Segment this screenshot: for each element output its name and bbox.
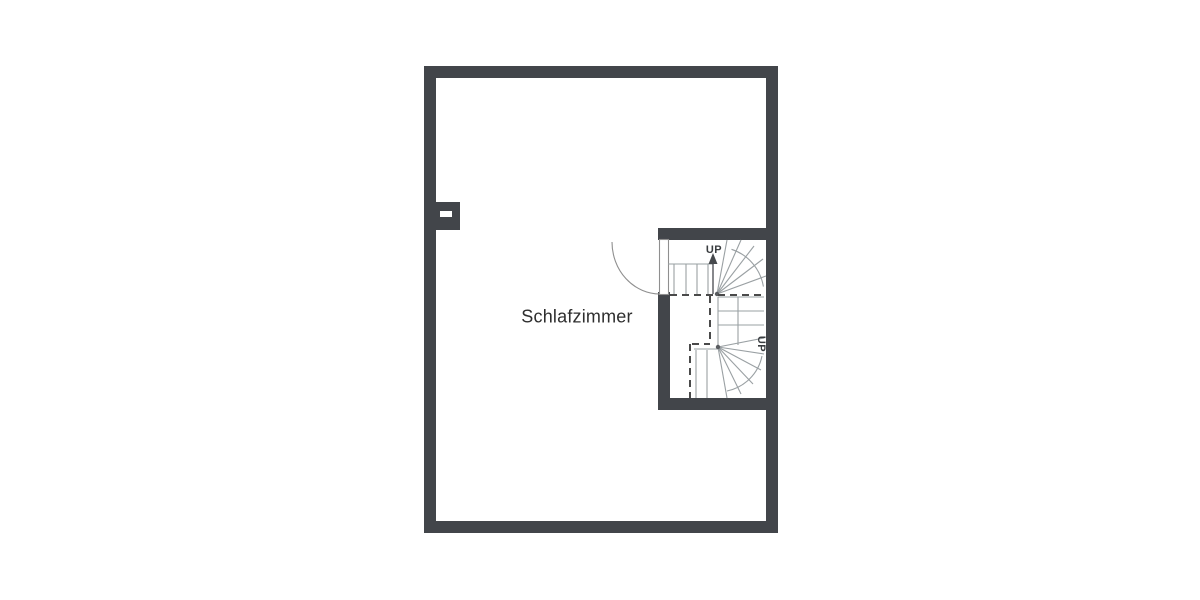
stair-door [612,240,669,295]
outer-walls [424,66,778,533]
room-label-schlafzimmer: Schlafzimmer [521,307,632,328]
door-leaf [660,240,669,295]
door-swing-arc [612,242,660,294]
floorplan-canvas: Schlafzimmer UP UP [0,0,1200,600]
stair-wall-left [658,292,670,410]
floorplan-drawing [0,0,1200,600]
wall-left [424,66,436,533]
wall-notch [436,202,460,230]
stair-wall-bottom [658,398,766,410]
wall-top [424,66,778,78]
wall-right [766,66,778,533]
stair-lower-flight [694,297,764,398]
stair-up-label-upper: UP [706,244,722,256]
notch-slot [440,211,452,217]
stair-wall-top [658,228,766,240]
winder-center-post [716,345,720,349]
stair-up-label-lower: UP [755,336,767,352]
wall-bottom [424,521,778,533]
